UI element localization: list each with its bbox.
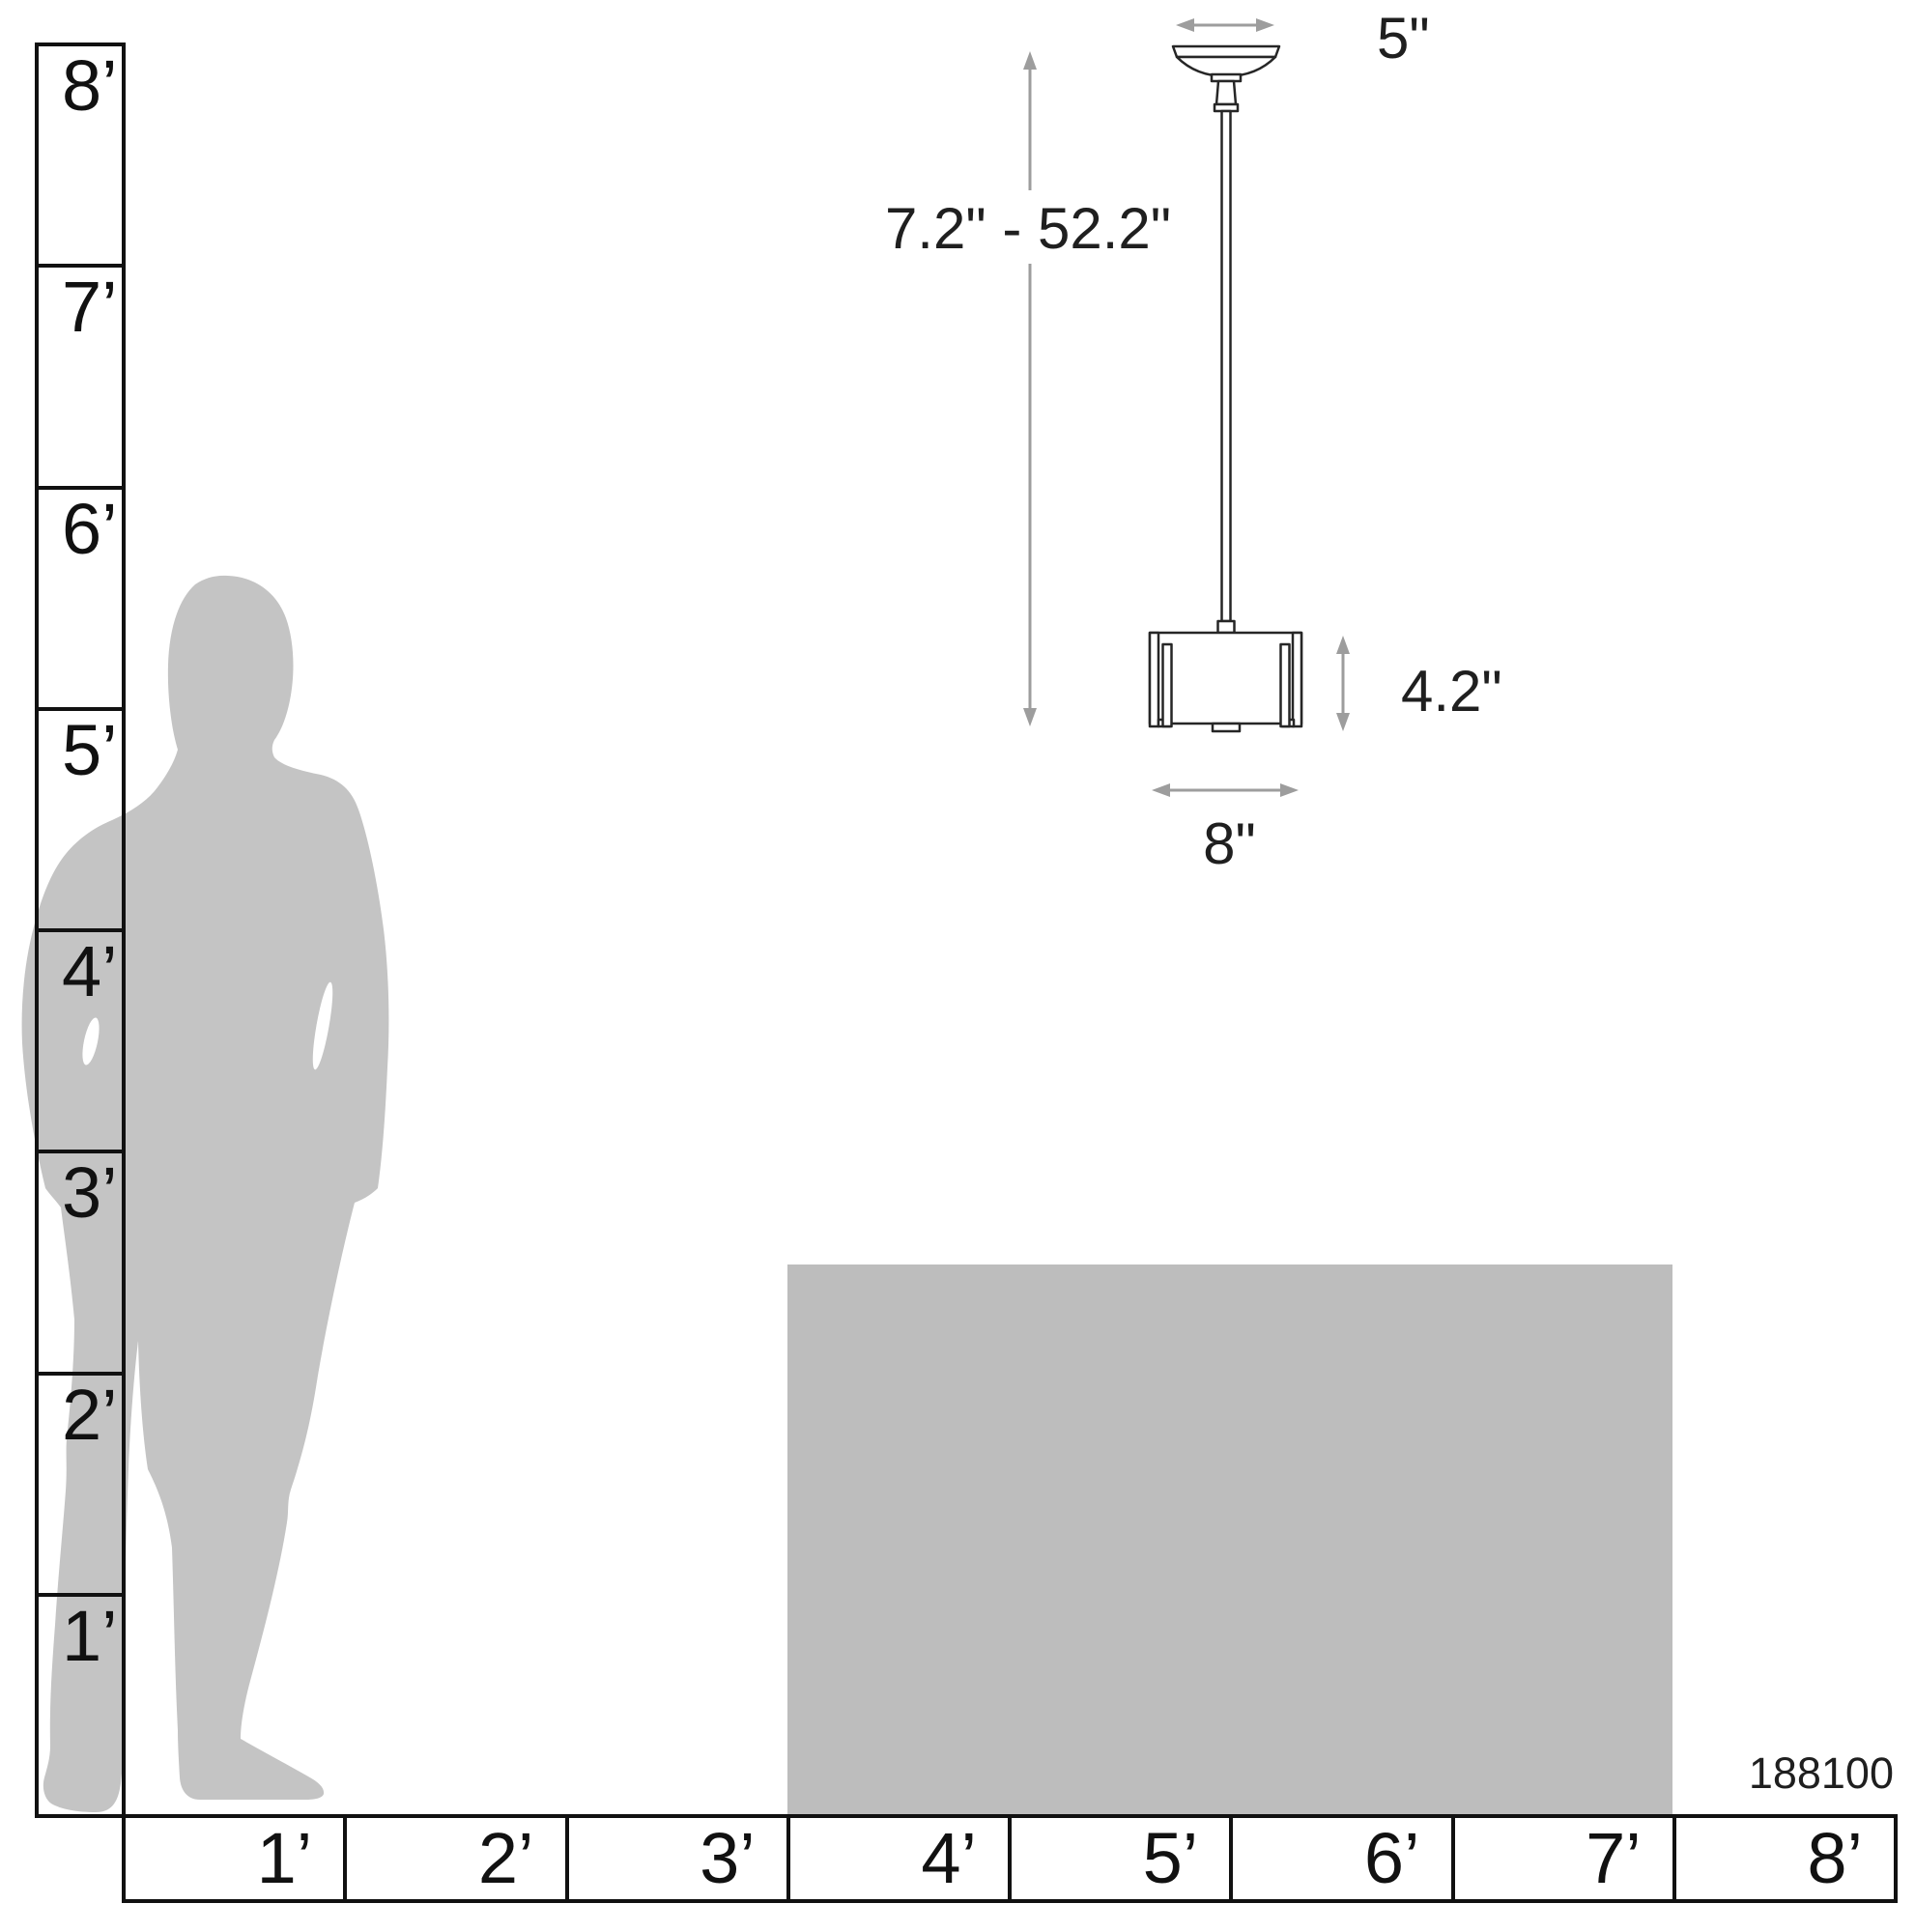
vertical-ruler-label: 3’ (39, 1153, 122, 1229)
horizontal-ruler-cell-7ft: 7’ (1455, 1818, 1676, 1899)
horizontal-ruler: 1’ 2’ 3’ 4’ 5’ 6’ 7’ 8’ (122, 1814, 1898, 1903)
vertical-ruler: 8’ 7’ 6’ 5’ 4’ 3’ 2’ 1’ (35, 43, 126, 1818)
vertical-ruler-cell-1ft: 1’ (39, 1597, 122, 1814)
horizontal-ruler-cell-5ft: 5’ (1012, 1818, 1233, 1899)
horizontal-ruler-cell-3ft: 3’ (569, 1818, 790, 1899)
horizontal-ruler-cell-8ft: 8’ (1676, 1818, 1894, 1899)
shade-width-label: 8" (1169, 813, 1290, 874)
horizontal-ruler-cell-1ft: 1’ (126, 1818, 347, 1899)
vertical-ruler-cell-5ft: 5’ (39, 711, 122, 932)
horizontal-ruler-cell-6ft: 6’ (1233, 1818, 1454, 1899)
vertical-ruler-label: 5’ (39, 711, 122, 786)
vertical-ruler-cell-6ft: 6’ (39, 490, 122, 711)
vertical-ruler-cell-4ft: 4’ (39, 932, 122, 1153)
shade-height-label: 4.2" (1401, 661, 1527, 722)
vertical-ruler-label: 1’ (39, 1597, 122, 1672)
vertical-ruler-cell-8ft: 8’ (39, 46, 122, 268)
height-range-label: 7.2" - 52.2" (873, 198, 1183, 259)
stem-connector-drawing (1218, 621, 1235, 633)
vertical-ruler-label: 6’ (39, 490, 122, 565)
table-silhouette (787, 1264, 1672, 1814)
vertical-ruler-label: 4’ (39, 932, 122, 1008)
stem-drawing (1222, 111, 1231, 621)
shade-drawing (1150, 633, 1301, 731)
vertical-ruler-cell-3ft: 3’ (39, 1153, 122, 1375)
vertical-ruler-label: 8’ (39, 46, 122, 122)
shade-width-arrow-icon (1152, 783, 1299, 797)
canopy-drawing (1173, 46, 1279, 111)
vertical-ruler-label: 7’ (39, 268, 122, 343)
vertical-ruler-label: 2’ (39, 1376, 122, 1451)
shade-height-arrow-icon (1336, 636, 1350, 731)
horizontal-ruler-cell-2ft: 2’ (347, 1818, 568, 1899)
scale-diagram: 8’ 7’ 6’ 5’ 4’ 3’ 2’ 1’ 1’ 2’ 3’ 4’ 5’ 6… (0, 0, 1915, 1932)
height-range-arrow-icon (1023, 51, 1037, 726)
vertical-ruler-cell-7ft: 7’ (39, 268, 122, 489)
model-number: 188100 (1604, 1750, 1894, 1796)
canopy-width-label: 5" (1377, 8, 1454, 69)
canopy-width-arrow-icon (1176, 18, 1274, 32)
vertical-ruler-cell-2ft: 2’ (39, 1376, 122, 1597)
horizontal-ruler-cell-4ft: 4’ (790, 1818, 1012, 1899)
pendant-fixture-drawing (870, 0, 1546, 927)
